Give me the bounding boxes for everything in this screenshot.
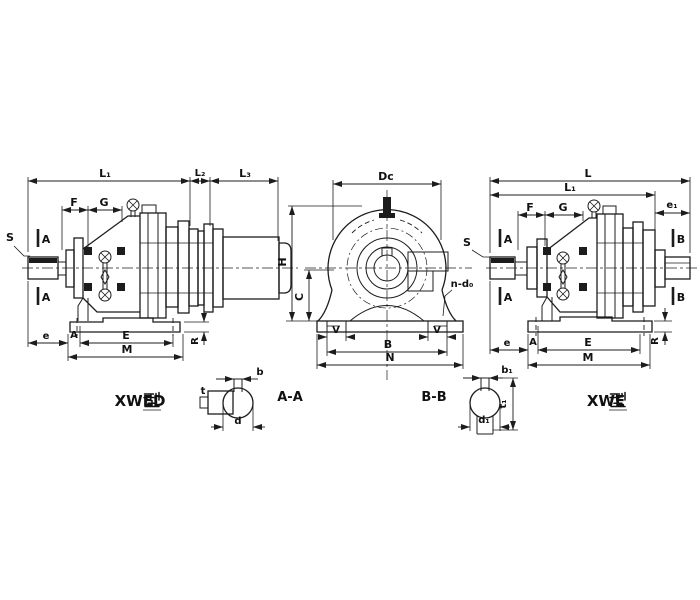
dim-label-v-right: V — [433, 325, 441, 336]
xwed-shaft-callout: S — [6, 231, 30, 256]
dim-label-l1: L₁ — [99, 167, 111, 180]
dim-label-g: G — [558, 201, 567, 214]
bolt-holes-callout: n-d₀ — [443, 279, 473, 316]
dim-label-l3: L₃ — [239, 167, 251, 180]
xwe-shaft-callout: S — [463, 236, 491, 257]
mounting-foot — [528, 317, 652, 336]
drawing-canvas: L₁ L₂ L₃ F G S A A — [0, 0, 700, 600]
eyebolt-plug-icon — [379, 197, 395, 218]
xwe-bottom-dimensions: e A E M R — [490, 281, 672, 369]
xwed-top-dimensions: L₁ L₂ L₃ F G — [28, 167, 278, 252]
xwe-section-marks: A A B B — [500, 229, 685, 305]
cut-mark-a-top: A — [42, 233, 51, 246]
dim-label-g: G — [99, 196, 108, 209]
dim-label-e: e — [43, 331, 50, 342]
label-s: S — [463, 236, 471, 249]
cut-mark-a-top: A — [504, 233, 513, 246]
dim-label-b: B — [384, 338, 392, 351]
dim-label-e-big: E — [122, 329, 130, 342]
eyebolt-icon — [588, 200, 616, 218]
label-n-d0: n-d₀ — [451, 279, 474, 290]
reducer-housing — [78, 213, 213, 321]
dim-label-b: b — [256, 367, 263, 378]
dim-label-f: F — [526, 201, 534, 214]
cut-mark-a-bottom: A — [42, 291, 51, 304]
section-b-b-dimensions: b₁ t₁ d₁ — [458, 365, 518, 431]
dim-label-r: R — [650, 337, 661, 345]
dim-label-l1: L₁ — [564, 181, 576, 194]
dim-label-b1: b₁ — [501, 365, 513, 376]
section-a-a: b t d A-A — [200, 367, 303, 431]
dim-label-d: d — [234, 416, 241, 427]
cut-mark-b-top: B — [677, 233, 685, 246]
end-view-dimensions: Dc H C V V B N — [276, 170, 463, 369]
dim-label-c: C — [293, 293, 306, 301]
dim-label-v-left: V — [332, 325, 340, 336]
label-s: S — [6, 231, 14, 244]
dim-label-a: A — [529, 337, 537, 348]
xwed-caption: XWED — [115, 392, 166, 410]
dim-label-m: M — [122, 343, 133, 356]
junction-box — [408, 252, 448, 291]
xwed-side-view: L₁ L₂ L₃ F G S A A — [6, 167, 298, 410]
xwe-side-view: L L₁ e₁ F G S A A B B — [463, 167, 700, 410]
caption-xwed: XWED — [115, 392, 166, 410]
dim-label-f: F — [70, 196, 78, 209]
end-view: n-d₀ Dc H C V V — [276, 170, 473, 380]
dim-label-r: R — [190, 337, 201, 345]
dim-label-h: H — [276, 257, 289, 266]
dim-label-l: L — [584, 167, 591, 180]
dim-label-t: t — [201, 386, 206, 397]
keyway — [234, 379, 242, 392]
oil-gauge — [99, 251, 111, 301]
caption-section-aa: A-A — [277, 390, 303, 405]
cut-mark-a-bottom: A — [504, 291, 513, 304]
section-b-b: b₁ t₁ d₁ B-B — [421, 365, 518, 434]
dim-label-e1: e₁ — [666, 200, 677, 211]
dim-label-e-big: E — [584, 336, 592, 349]
dim-label-m: M — [583, 351, 594, 364]
keyway — [481, 378, 489, 391]
eyebolt-icon — [127, 199, 156, 217]
housing-face-bolts — [84, 247, 125, 291]
dim-label-e: e — [504, 338, 511, 349]
dim-label-d1: d₁ — [478, 415, 490, 426]
xwed-section-marks: A A — [38, 229, 51, 305]
drawing-page: L₁ L₂ L₃ F G S A A — [0, 0, 700, 600]
xwe-caption: XWE — [587, 392, 627, 410]
dim-label-n: N — [385, 351, 394, 364]
dim-label-a: A — [70, 330, 78, 341]
cut-mark-b-bottom: B — [677, 291, 685, 304]
dim-label-dc: Dc — [378, 170, 394, 183]
dim-label-l2: L₂ — [195, 168, 206, 179]
oil-gauge — [557, 252, 569, 300]
caption-section-bb: B-B — [421, 390, 446, 405]
reducer-housing — [542, 214, 643, 321]
shaft-section-outline — [200, 379, 253, 418]
